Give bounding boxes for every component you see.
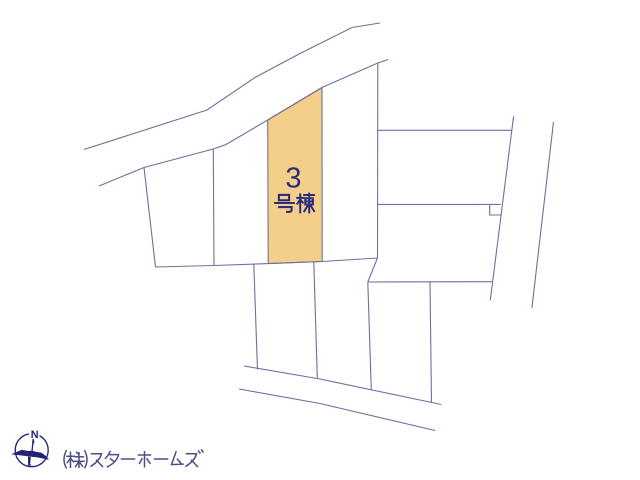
svg-text:N: N [31,429,39,441]
svg-text:3: 3 [285,162,301,194]
